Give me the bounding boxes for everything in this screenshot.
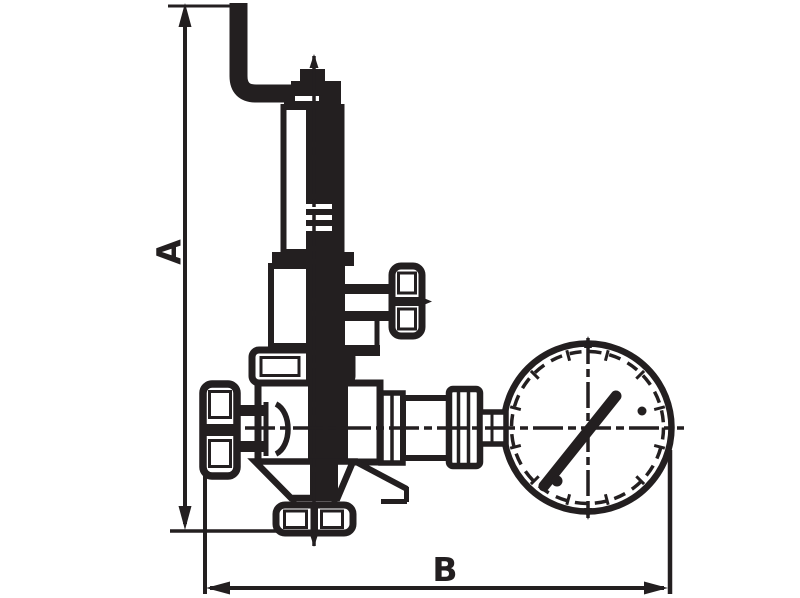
centerline-arrow-icon (310, 54, 319, 68)
arrow-left-icon (206, 582, 230, 595)
bent-pipe (239, 3, 296, 94)
needle-counterweight (552, 476, 563, 487)
centerline-arrow-icon (420, 297, 432, 307)
dial-pin (638, 407, 647, 416)
body-top-flange (252, 350, 352, 383)
adjustment-handle (344, 266, 432, 336)
valve-technical-drawing: A B (0, 0, 800, 598)
spring-coil-gap (304, 215, 332, 220)
dimension-a-label: A (150, 239, 189, 265)
outlet-assembly (255, 462, 353, 534)
arrow-down-icon (179, 506, 192, 530)
arrow-right-icon (644, 582, 668, 595)
centerline-arrow-icon (310, 533, 319, 547)
dimension-b-label: B (432, 550, 457, 589)
spring-coil-gap (304, 226, 332, 231)
spring-coil-gap (304, 204, 332, 209)
